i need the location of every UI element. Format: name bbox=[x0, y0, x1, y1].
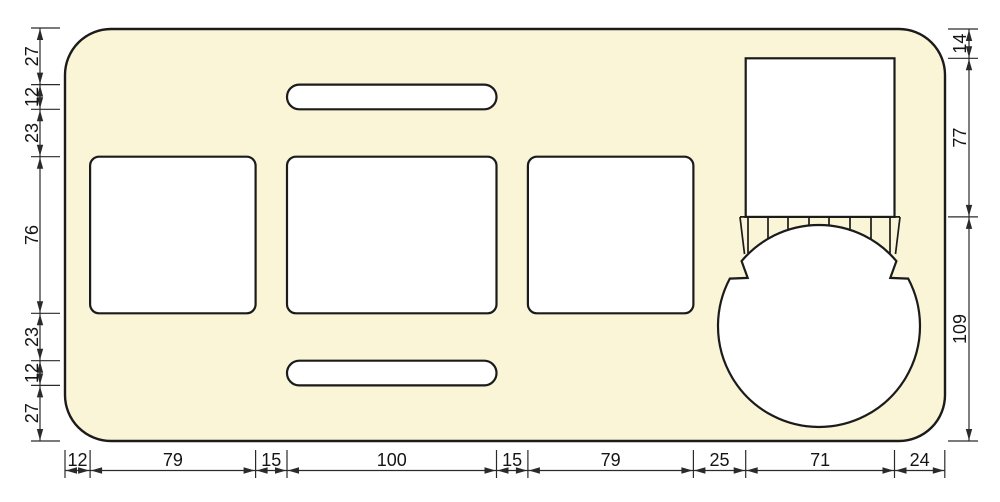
dimension-arrow bbox=[37, 29, 43, 40]
dimension-arrow bbox=[694, 467, 705, 473]
dimension-label-bottom-0: 12 bbox=[68, 450, 88, 470]
dimension-label-left-6: 27 bbox=[22, 403, 42, 423]
dimension-label-right-0: 14 bbox=[950, 34, 970, 54]
dimension-arrow bbox=[244, 467, 255, 473]
dimension-arrow bbox=[37, 158, 43, 169]
dimension-label-bottom-5: 79 bbox=[601, 450, 621, 470]
dimension-arrow bbox=[37, 349, 43, 360]
dimension-arrow bbox=[37, 73, 43, 84]
dimension-label-bottom-1: 79 bbox=[163, 450, 183, 470]
cutout-square-right bbox=[528, 157, 694, 314]
dimension-arrow bbox=[966, 429, 972, 440]
dimension-arrow bbox=[37, 386, 43, 397]
dimension-arrow bbox=[966, 59, 972, 70]
dimension-arrow bbox=[91, 467, 102, 473]
dimension-arrow bbox=[681, 467, 692, 473]
dimension-label-left-3: 76 bbox=[22, 225, 42, 245]
cutout-slot-bottom bbox=[287, 361, 497, 386]
bottom-dimension-chain: 1279151001579257124 bbox=[65, 450, 945, 478]
dimension-label-left-0: 27 bbox=[22, 46, 42, 66]
dimension-label-left-1: 12 bbox=[22, 87, 42, 107]
left-dimension-chain: 27122376231227 bbox=[22, 28, 60, 441]
cutout-square-center bbox=[287, 157, 497, 314]
dimension-arrow bbox=[966, 205, 972, 216]
dimension-arrow bbox=[883, 467, 894, 473]
dimension-arrow bbox=[37, 110, 43, 121]
dimension-label-left-4: 23 bbox=[22, 327, 42, 347]
dimension-label-right-2: 109 bbox=[950, 314, 970, 344]
cutout-connector-rect bbox=[746, 58, 895, 217]
dimension-arrow bbox=[529, 467, 540, 473]
dimension-label-bottom-7: 71 bbox=[810, 450, 830, 470]
dimension-label-left-5: 12 bbox=[22, 363, 42, 383]
dimension-label-bottom-2: 15 bbox=[261, 450, 281, 470]
dimension-label-bottom-3: 100 bbox=[377, 450, 407, 470]
dimension-arrow bbox=[747, 467, 758, 473]
dimension-label-left-2: 23 bbox=[22, 123, 42, 143]
dimension-arrow bbox=[288, 467, 299, 473]
dimension-arrow bbox=[37, 429, 43, 440]
dimension-arrow bbox=[966, 218, 972, 229]
cutout-square-left bbox=[90, 157, 256, 314]
dimension-arrow bbox=[895, 467, 906, 473]
cutout-slot-top bbox=[287, 85, 497, 110]
panel-cutout-technical-drawing: 2712237623122714771091279151001579257124 bbox=[0, 0, 1000, 502]
cutout-circle-keyed bbox=[718, 225, 920, 427]
drawing-canvas: 2712237623122714771091279151001579257124 bbox=[0, 0, 1000, 502]
dimension-arrow bbox=[933, 467, 944, 473]
dimension-arrow bbox=[37, 301, 43, 312]
dimension-label-bottom-6: 25 bbox=[710, 450, 730, 470]
dimension-arrow bbox=[37, 314, 43, 325]
dimension-arrow bbox=[734, 467, 745, 473]
dimension-arrow bbox=[37, 145, 43, 156]
dimension-arrow bbox=[485, 467, 496, 473]
dimension-label-bottom-4: 15 bbox=[502, 450, 522, 470]
dimension-label-bottom-8: 24 bbox=[910, 450, 930, 470]
dimension-label-right-1: 77 bbox=[950, 128, 970, 148]
right-dimension-chain: 1477109 bbox=[948, 29, 978, 441]
